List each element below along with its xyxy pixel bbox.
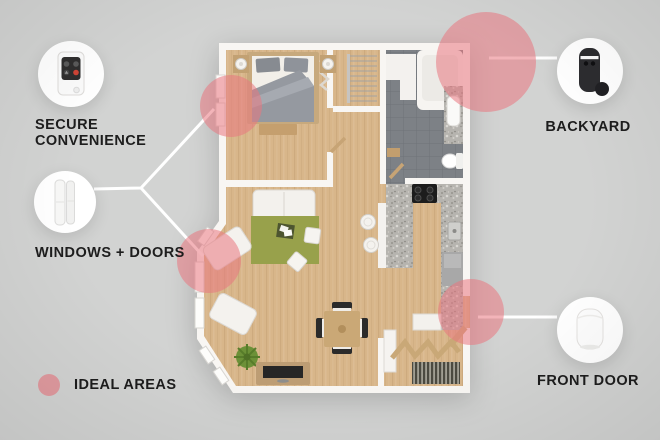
ideal-area-backyard	[436, 12, 536, 112]
ideal-area-dot	[38, 374, 60, 396]
shoe-grate	[412, 362, 460, 384]
entry-sensor-icon	[34, 171, 96, 233]
ideal-area-living-window	[177, 229, 241, 293]
front-door-label: FRONT DOOR	[518, 374, 658, 390]
ideal-areas-label: IDEAL AREAS	[74, 378, 176, 394]
indoor-camera-icon	[557, 297, 623, 363]
security-placement-diagram: SECURE CONVENIENCE WINDOWS + DOORS BACKY…	[0, 0, 660, 440]
ideal-area-front-door	[438, 279, 504, 345]
front-door-callout	[557, 297, 623, 363]
ideal-area-bedroom-window	[200, 75, 262, 137]
secure-convenience-callout	[38, 41, 104, 107]
secure-convenience-label: SECURE CONVENIENCE	[35, 118, 146, 149]
pouf	[304, 227, 321, 244]
lower-cabinet	[413, 314, 441, 330]
outdoor-camera-icon	[557, 38, 623, 104]
secure-convenience-line2: CONVENIENCE	[35, 134, 146, 150]
barstool	[361, 215, 376, 230]
bath-shelf	[387, 148, 400, 157]
tv	[263, 366, 303, 378]
secure-convenience-line1: SECURE	[35, 118, 146, 134]
toilet	[442, 154, 458, 168]
windows-doors-label: WINDOWS + DOORS	[35, 246, 185, 262]
backyard-callout	[557, 38, 623, 104]
legend-marker	[38, 374, 60, 396]
backyard-label: BACKYARD	[518, 120, 658, 136]
island-face	[378, 203, 386, 268]
windows-doors-callout	[34, 171, 96, 233]
bench	[259, 124, 297, 135]
pillow	[256, 57, 281, 73]
entry-cubby	[384, 330, 396, 372]
pillow	[284, 57, 309, 72]
keyfob-remote-icon	[38, 41, 104, 107]
barstool	[364, 238, 379, 253]
